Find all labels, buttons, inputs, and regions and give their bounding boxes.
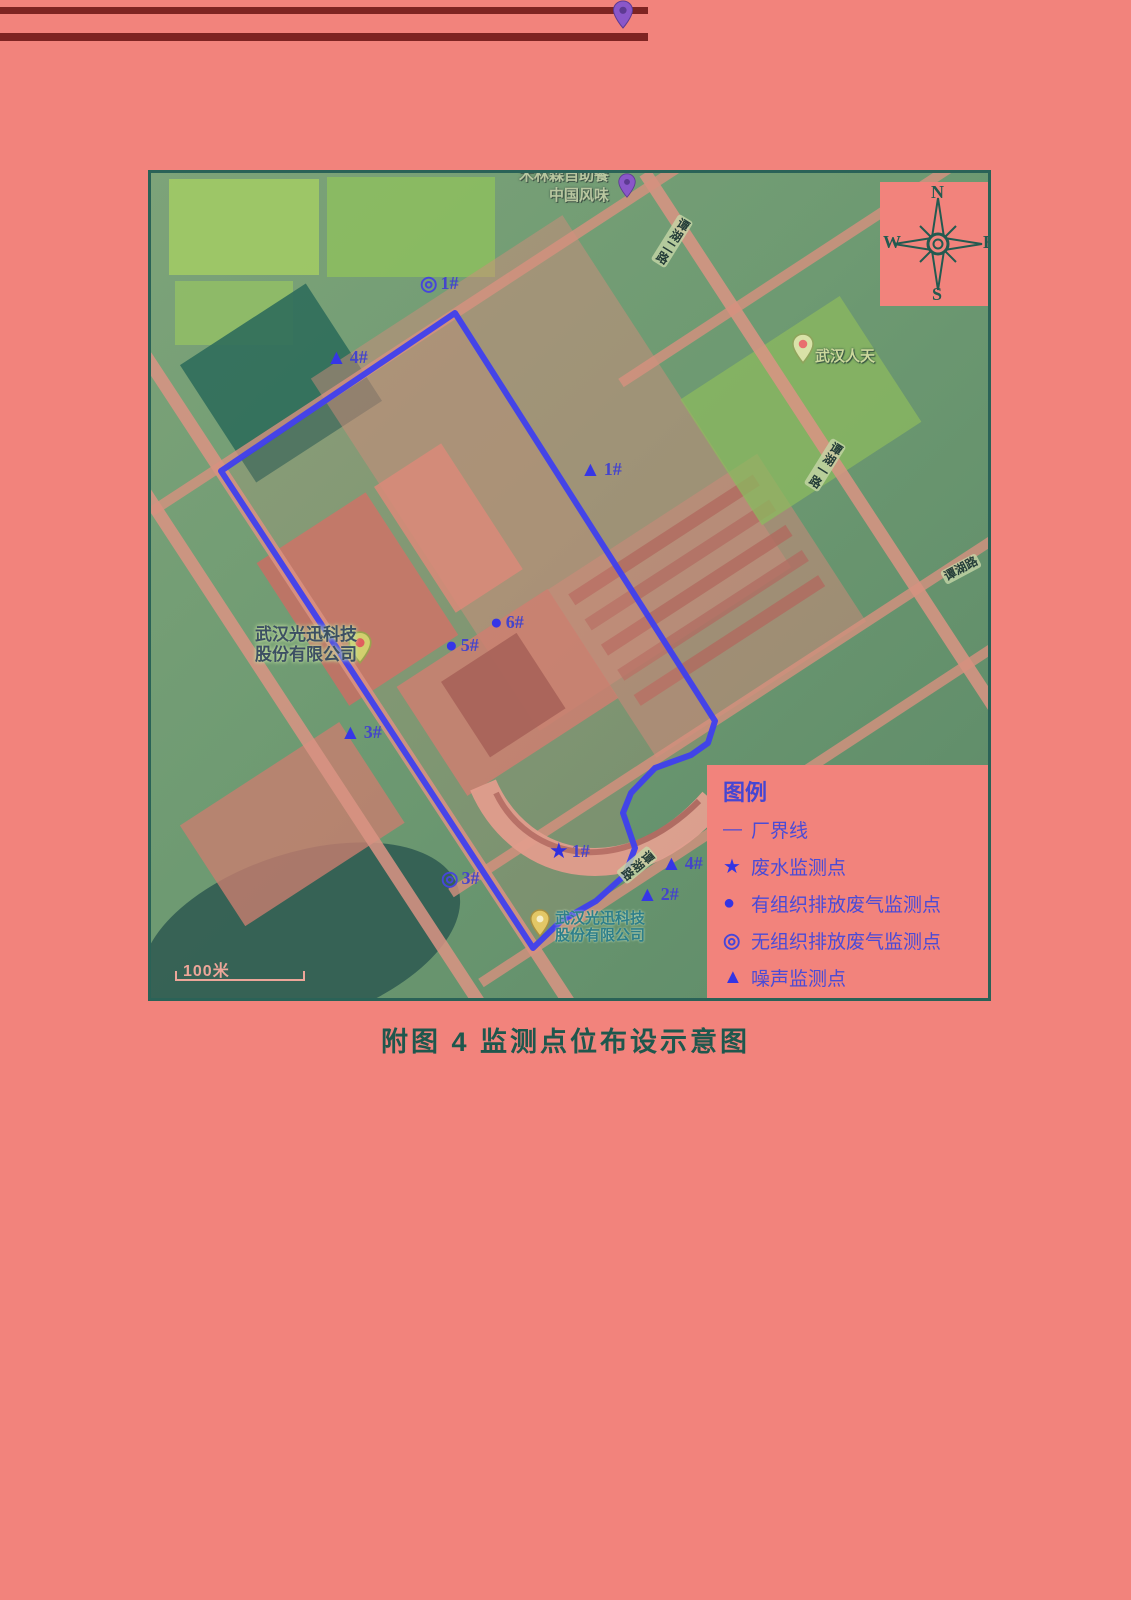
marker-dot-6: ●6# <box>490 612 524 633</box>
marker-label: 2# <box>661 884 679 905</box>
map-pin-icon <box>529 909 551 943</box>
legend-item-dot: ●有组织排放废气监测点 <box>723 885 991 922</box>
marker-label: 3# <box>461 868 479 889</box>
compass-south-label: S <box>932 284 942 305</box>
star-marker-icon: ★ <box>549 840 569 862</box>
poi-label-line: 武汉光迅科技 <box>229 625 357 645</box>
legend-item-label: 有组织排放废气监测点 <box>751 890 941 917</box>
triangle-marker-icon: ▲ <box>580 459 601 480</box>
compass-north-label: N <box>931 182 944 203</box>
marker-ring-3: ◎3# <box>441 868 479 889</box>
marker-label: 1# <box>604 459 622 480</box>
marker-triangle-3: ▲3# <box>340 722 382 743</box>
scale-bar-tick <box>175 971 177 981</box>
marker-triangle-1: ▲1# <box>580 459 622 480</box>
map-legend: 图例 —厂界线★废水监测点●有组织排放废气监测点◎无组织排放废气监测点▲噪声监测… <box>707 765 991 999</box>
purple-pin-artifact <box>612 0 634 35</box>
triangle-marker-icon: ▲ <box>326 347 347 368</box>
marker-label: 1# <box>440 273 458 294</box>
compass-rose: N S W E <box>880 182 991 306</box>
marker-triangle-4: ▲4# <box>326 347 368 368</box>
poi-label-accelink-south: 武汉光迅科技 股份有限公司 <box>555 910 645 944</box>
triangle-marker-icon: ▲ <box>637 884 658 905</box>
poi-label-restaurant-subtitle: 中国风味 <box>549 184 609 205</box>
scan-artifact-stripe <box>0 33 648 41</box>
figure-caption: 附图 4 监测点位布设示意图 <box>0 1020 1131 1059</box>
marker-label: 1# <box>572 841 590 862</box>
poi-label-accelink-west: 武汉光迅科技 股份有限公司 <box>229 625 357 665</box>
poi-label-line: 股份有限公司 <box>555 927 645 944</box>
marker-star-1: ★1# <box>549 840 590 862</box>
dot-legend-icon: ● <box>723 892 751 915</box>
triangle-marker-icon: ▲ <box>661 853 682 874</box>
marker-triangle-2: ▲2# <box>637 884 679 905</box>
triangle-marker-icon: ▲ <box>340 722 361 743</box>
poi-label-wuhan-rentian: 武汉人天 <box>815 345 875 366</box>
legend-item-ring: ◎无组织排放废气监测点 <box>723 922 991 959</box>
poi-label-line: 股份有限公司 <box>229 645 357 665</box>
legend-item-label: 噪声监测点 <box>751 964 846 991</box>
poi-label-restaurant: 木林森自助餐 <box>519 170 609 185</box>
satellite-map: ◎1#▲4#▲1#●6#●5#▲3#★1#◎3#▲4#▲2# 武汉人天 武汉光迅… <box>148 170 991 1001</box>
legend-item-label: 厂界线 <box>751 816 808 843</box>
star-legend-icon: ★ <box>723 854 751 879</box>
scan-artifact-stripe <box>0 7 648 14</box>
legend-title: 图例 <box>723 775 991 807</box>
legend-item-line: —厂界线 <box>723 811 991 848</box>
dot-marker-icon: ● <box>490 612 503 633</box>
legend-item-star: ★废水监测点 <box>723 848 991 885</box>
marker-label: 6# <box>506 612 524 633</box>
scale-bar-line <box>175 979 305 981</box>
legend-items: —厂界线★废水监测点●有组织排放废气监测点◎无组织排放废气监测点▲噪声监测点 <box>723 811 991 996</box>
compass-east-label: E <box>983 232 991 253</box>
marker-triangle-4: ▲4# <box>661 853 703 874</box>
poi-label-line: 武汉光迅科技 <box>555 910 645 927</box>
legend-item-label: 废水监测点 <box>751 853 846 880</box>
marker-label: 4# <box>685 853 703 874</box>
marker-ring-1: ◎1# <box>420 273 458 294</box>
scale-bar <box>175 971 305 981</box>
triangle-legend-icon: ▲ <box>723 966 751 989</box>
dot-marker-icon: ● <box>445 635 458 656</box>
legend-item-triangle: ▲噪声监测点 <box>723 959 991 996</box>
map-pin-icon <box>617 173 637 204</box>
marker-label: 4# <box>350 347 368 368</box>
line-legend-icon: — <box>723 819 751 841</box>
ring-marker-icon: ◎ <box>441 869 458 889</box>
map-pin-icon <box>791 333 815 370</box>
ring-legend-icon: ◎ <box>723 928 751 953</box>
ring-marker-icon: ◎ <box>420 274 437 294</box>
compass-west-label: W <box>883 232 901 253</box>
marker-label: 5# <box>461 635 479 656</box>
scale-bar-tick <box>303 971 305 981</box>
marker-dot-5: ●5# <box>445 635 479 656</box>
marker-label: 3# <box>364 722 382 743</box>
legend-item-label: 无组织排放废气监测点 <box>751 927 941 954</box>
